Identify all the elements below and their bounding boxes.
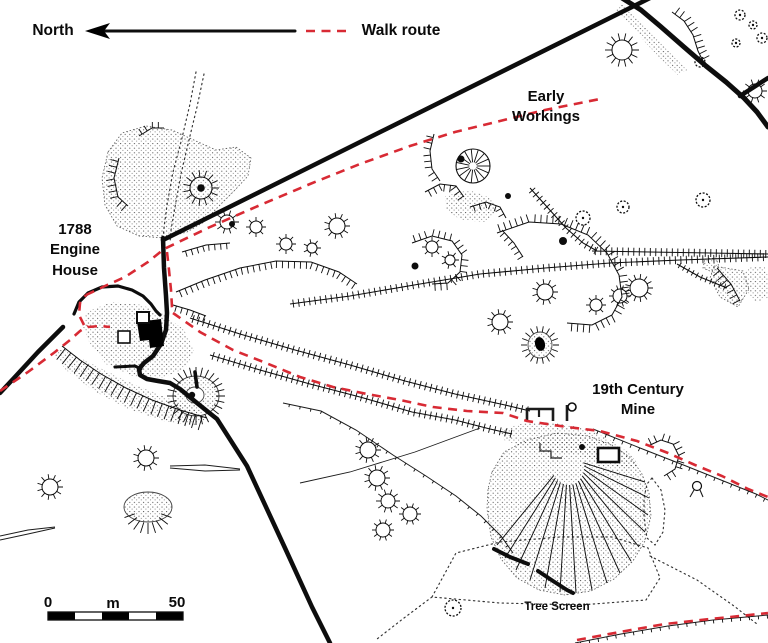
shaft-symbol-leg-b — [700, 490, 703, 497]
shaft-mound-west — [38, 474, 63, 500]
stipple-adit-mound — [710, 266, 749, 307]
bank-east-of-junction — [173, 305, 206, 321]
mound-small-a — [399, 504, 421, 525]
survey-dot-c — [559, 237, 567, 245]
mound-chain-c — [376, 490, 400, 513]
site-map-svg — [0, 0, 768, 643]
mound-c1 — [276, 234, 296, 254]
shaft-wheel-early-workings — [456, 149, 490, 183]
tree-a — [576, 211, 590, 225]
road-southwest — [0, 327, 63, 393]
road-south-through-site — [139, 238, 330, 643]
mound-c2 — [304, 239, 321, 257]
tramway-lower — [290, 253, 768, 307]
engine-house-boiler — [137, 312, 149, 323]
shaft-symbol-east — [693, 482, 702, 491]
scale-bar-seg1 — [48, 612, 75, 620]
hollow-ring-central — [325, 213, 350, 239]
shaft-mound-top — [605, 33, 639, 66]
mound-stipple-southwest — [124, 492, 172, 522]
survey-dot-d — [505, 193, 511, 199]
stipple-mound-right-edge — [744, 266, 768, 302]
early-workings-mound-b — [442, 251, 459, 269]
tree-c — [696, 193, 710, 207]
mound-pair-b — [246, 217, 266, 237]
dotted-line-south-exit — [377, 597, 432, 639]
mound-cluster-east-b — [609, 286, 631, 307]
survey-dot-a — [229, 221, 235, 227]
stipple-early-workings-patch — [445, 190, 497, 222]
roofless-building — [118, 331, 130, 343]
mound-small-b — [372, 520, 394, 541]
walk-route-bottom — [577, 613, 768, 640]
mound-chain-b — [365, 465, 390, 491]
bank-north-of-engine-house — [176, 261, 357, 297]
field-line-cross — [300, 428, 480, 483]
dotted-line-southeast — [650, 556, 757, 624]
survey-dot-b — [412, 263, 419, 270]
tree-screen-tree — [445, 600, 461, 616]
field-boundary-southeast — [283, 403, 513, 553]
mound-cluster-east-d — [533, 279, 558, 305]
scarp-below-road-a — [182, 243, 230, 257]
shaft-dot-early-workings — [458, 156, 465, 163]
shaft-symbol-leg-a — [690, 490, 694, 497]
survey-dot-e — [579, 444, 585, 450]
early-workings-mound-a — [422, 237, 442, 257]
track-lens-small-a — [0, 527, 55, 536]
mine-flag-circle — [568, 403, 576, 411]
mound-cluster-east-e — [488, 309, 513, 335]
scale-bar-seg2 — [102, 612, 129, 620]
scale-bar-seg3 — [156, 612, 183, 620]
mound-squiggle — [134, 445, 159, 471]
spoil-area-northwest — [102, 126, 251, 238]
road-main-northeast — [163, 0, 650, 240]
mine-building-east — [598, 448, 619, 462]
tree-e — [749, 21, 757, 29]
wall-stub-south — [195, 372, 197, 387]
tree-g — [732, 39, 740, 47]
tree-b — [617, 201, 629, 213]
tree-f — [757, 33, 767, 43]
mound-cluster-east-a — [625, 274, 653, 302]
tree-d — [735, 10, 745, 20]
road-top-curve — [622, 0, 768, 127]
early-workings-bank-c — [500, 230, 523, 260]
mound-cluster-east-c — [586, 295, 606, 315]
shaft-hollow-dot — [197, 184, 205, 192]
survey-map-page: North Walk route Early Workings 1788 Eng… — [0, 0, 768, 643]
track-lens-b — [170, 468, 240, 471]
fence-bottom-right — [575, 615, 768, 643]
road-east-stub — [740, 78, 768, 96]
walkside-bank-south — [210, 352, 512, 438]
